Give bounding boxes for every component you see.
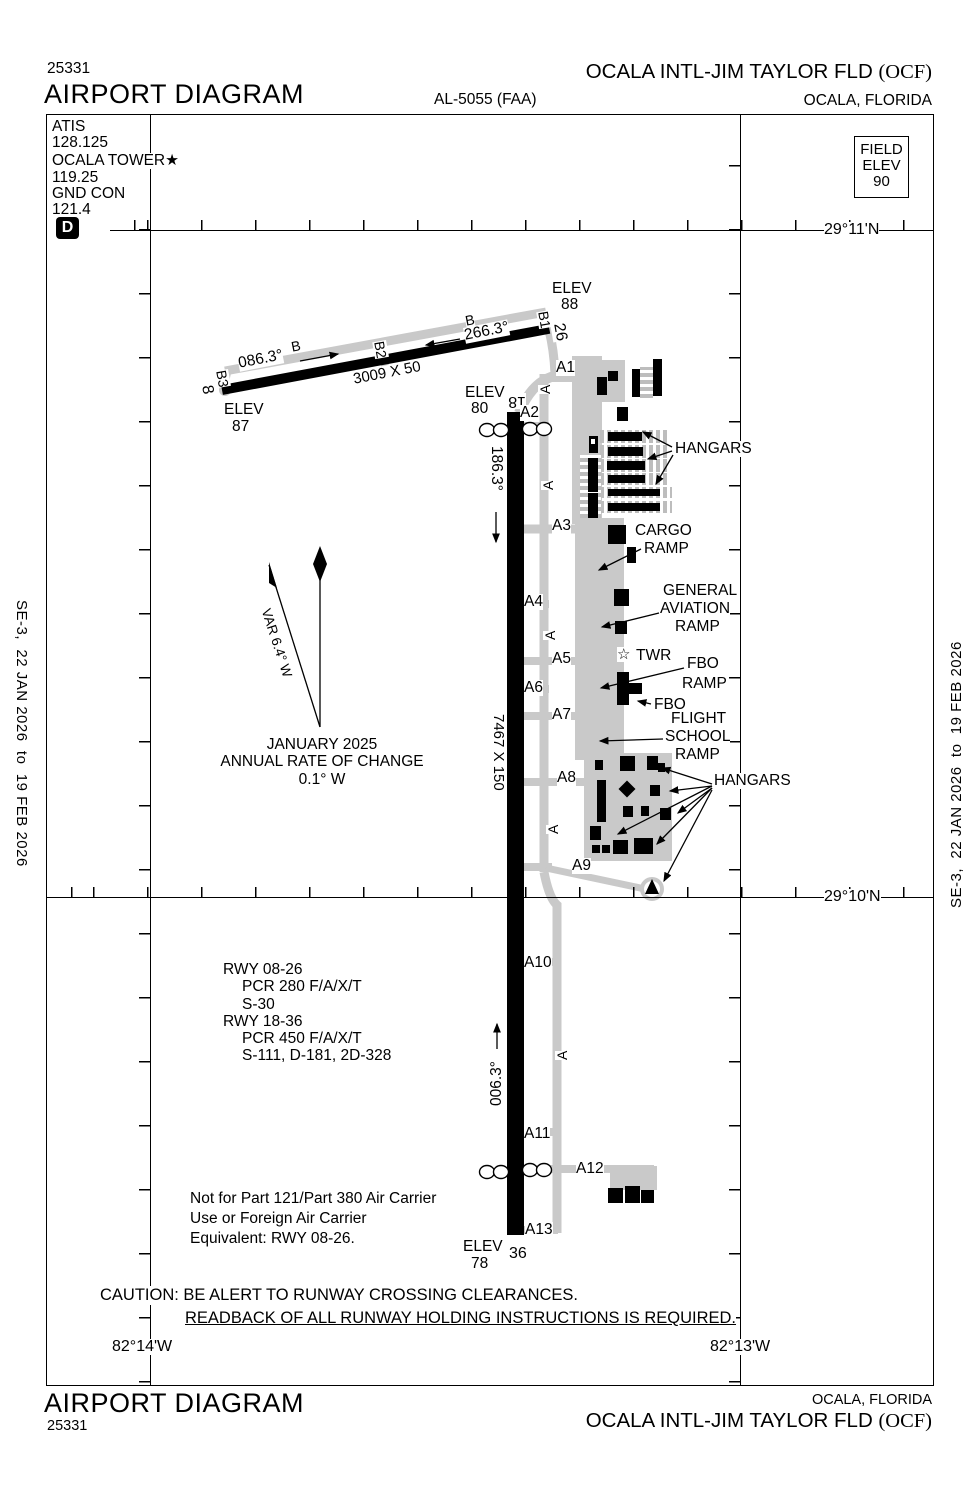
twy-a: A: [546, 825, 560, 834]
field-elev-value: 90: [855, 174, 908, 190]
magnetic-variation-note: JANUARY 2025 ANNUAL RATE OF CHANGE 0.1° …: [210, 736, 434, 788]
twy-a3: A3: [552, 518, 571, 534]
field-elev-label: ELEV: [855, 158, 908, 174]
lat-label: 29°10'N: [824, 889, 881, 905]
field-elev-label: FIELD: [855, 142, 908, 158]
comm-line: GND CON: [52, 186, 179, 202]
elev-36-end: ELEV: [463, 1239, 503, 1255]
elev-26-end: ELEV: [552, 281, 592, 297]
twy-a1: A1: [556, 360, 575, 376]
flight-school-label: FLIGHT: [671, 711, 726, 727]
footer-airport-title: OCALA INTL-JIM TAYLOR FLD (OCF): [430, 1409, 932, 1433]
tower-label: TWR: [636, 648, 671, 664]
part121-line: Equivalent: RWY 08-26.: [190, 1229, 436, 1249]
north-arrow: [313, 546, 327, 582]
rwy36-heading: 006.3°: [489, 1061, 505, 1106]
twy-b2: B2: [372, 340, 389, 359]
part121-line: Use or Foreign Air Carrier: [190, 1209, 436, 1229]
cargo-ramp-label: RAMP: [644, 541, 689, 557]
elev-26-end-value: 88: [561, 297, 578, 313]
twy-a6: A6: [524, 680, 543, 696]
comm-line: 119.25: [52, 170, 179, 186]
lon-label: 82°13'W: [710, 1339, 770, 1355]
twy-a: A: [555, 1051, 569, 1060]
twy-b1: B1: [536, 310, 553, 329]
ga-ramp-label: GENERAL: [663, 583, 737, 599]
fbo-ramp-label: FBO: [687, 656, 719, 672]
runway-data-block: RWY 08-26 PCR 280 F/A/X/T S-30 RWY 18-36…: [223, 961, 391, 1065]
comm-line: ATIS: [52, 119, 179, 135]
ga-ramp-label: AVIATION: [660, 601, 730, 617]
variation-line: JANUARY 2025: [210, 736, 434, 753]
elev-36-end-value: 78: [471, 1256, 488, 1272]
elev-18-end: ELEV: [465, 385, 505, 401]
variation-line: ANNUAL RATE OF CHANGE: [210, 753, 434, 770]
variation-arrowhead: [269, 562, 277, 588]
twy-a2: A2: [520, 405, 539, 421]
rwy36-number: 36: [509, 1246, 527, 1262]
rwy-data-line: RWY 08-26: [223, 961, 391, 978]
twy-a12: A12: [576, 1161, 604, 1177]
footer-title: AIRPORT DIAGRAM: [44, 1388, 304, 1419]
part121-line: Not for Part 121/Part 380 Air Carrier: [190, 1189, 436, 1209]
comm-line: 128.125: [52, 135, 179, 151]
twy-a7: A7: [552, 707, 571, 723]
elev-08-end: ELEV: [224, 402, 264, 418]
flight-school-label: SCHOOL: [665, 729, 730, 745]
rwy-data-line: PCR 280 F/A/X/T: [223, 978, 391, 995]
flight-school-label: RAMP: [675, 747, 720, 763]
elev-18-end-value: 80: [471, 401, 488, 417]
rwy-data-line: RWY 18-36: [223, 1013, 391, 1030]
footer-chart-number: 25331: [47, 1418, 87, 1434]
comm-line: OCALA TOWER★: [52, 153, 179, 169]
field-elevation-box: FIELD ELEV 90: [854, 136, 909, 198]
rwy1836-dimensions: 7467 X 150: [491, 714, 506, 791]
footer-city: OCALA, FLORIDA: [630, 1392, 932, 1408]
fbo-ramp-label: RAMP: [682, 676, 727, 692]
footer-airport-name: OCALA INTL-JIM TAYLOR FLD: [586, 1409, 873, 1432]
rwy-data-line: S-30: [223, 996, 391, 1013]
hangars-label-north: HANGARS: [675, 441, 752, 457]
hangars-label-south: HANGARS: [714, 773, 791, 789]
footer-airport-icao: (OCF): [878, 1410, 932, 1432]
lon-label: 82°14'W: [112, 1339, 172, 1355]
rwy-data-line: S-111, D-181, 2D-328: [223, 1047, 391, 1064]
caution-note-line2: READBACK OF ALL RUNWAY HOLDING INSTRUCTI…: [185, 1309, 736, 1328]
twy-a5: A5: [552, 651, 571, 667]
comm-frequencies: ATIS 128.125 OCALA TOWER★ 119.25 GND CON…: [52, 119, 179, 218]
elev-08-end-value: 87: [232, 419, 249, 435]
ga-ramp-label: RAMP: [675, 619, 720, 635]
twy-a10: A10: [524, 955, 552, 971]
variation-line: 0.1° W: [210, 771, 434, 788]
twy-a9: A9: [572, 858, 591, 874]
twy-a13: A13: [525, 1222, 553, 1238]
part121-note: Not for Part 121/Part 380 Air Carrier Us…: [190, 1189, 436, 1249]
tower-star-icon: ☆: [617, 647, 630, 662]
twy-a: A: [543, 631, 557, 640]
twy-a11: A11: [524, 1126, 550, 1142]
beacon-icon: [645, 879, 659, 894]
caution-note-line1: CAUTION: BE ALERT TO RUNWAY CROSSING CLE…: [100, 1286, 578, 1305]
twy-a8: A8: [557, 770, 576, 786]
twy-b3: B3: [214, 369, 231, 388]
twy-a: A: [538, 385, 552, 394]
rwy18-heading: 186.3°: [489, 446, 505, 491]
cargo-ramp-label: CARGO: [635, 523, 692, 539]
twy-a: A: [541, 481, 555, 490]
hot-spot-d-symbol: D: [56, 217, 79, 239]
twy-a4: A4: [524, 594, 543, 610]
rwy-data-line: PCR 450 F/A/X/T: [223, 1030, 391, 1047]
airport-diagram-page: 25331 AIRPORT DIAGRAM AL-5055 (FAA) OCAL…: [0, 0, 978, 1500]
lat-label: 29°11'N: [824, 222, 879, 238]
